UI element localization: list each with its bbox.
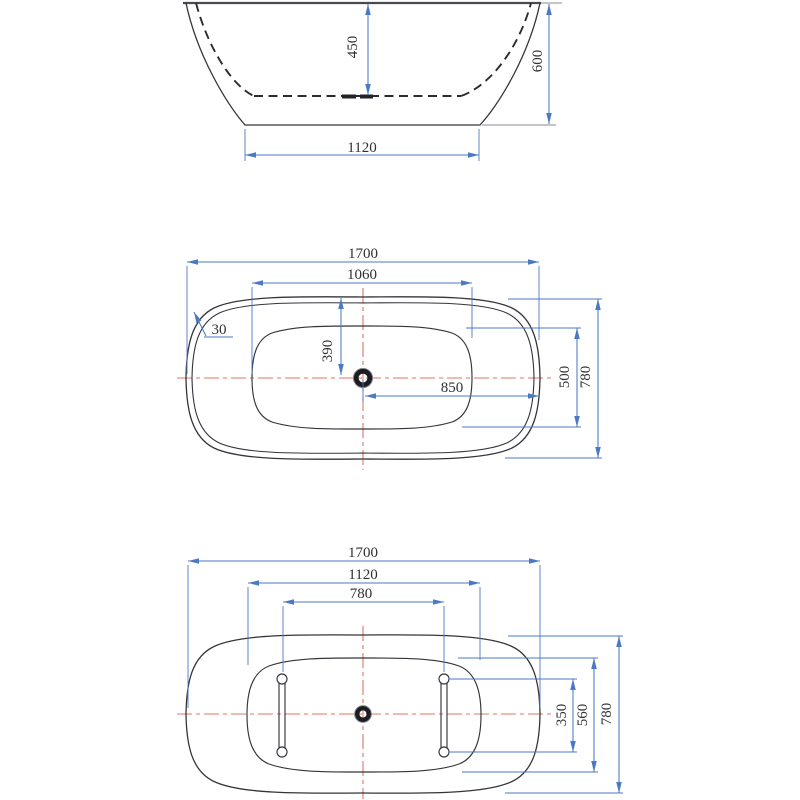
slot-hole-bottom bbox=[277, 747, 287, 757]
bottom-dim-label-1700: 1700 bbox=[348, 545, 378, 561]
front-inner-profile-left-dashed bbox=[196, 3, 254, 96]
bottom-dim-label-350: 350 bbox=[554, 704, 570, 727]
top-dim-label-30: 30 bbox=[212, 322, 227, 338]
drawing-canvas: 450 600 1120 1700 1060 30 bbox=[0, 0, 800, 800]
top-plan-view: 1700 1060 30 390 850 500 780 bbox=[177, 246, 602, 470]
top-dim-label-850: 850 bbox=[441, 380, 464, 396]
bottom-dim-label-780-slots: 780 bbox=[350, 586, 373, 602]
top-dim-label-1700: 1700 bbox=[348, 246, 378, 262]
top-dim-label-390: 390 bbox=[320, 340, 336, 363]
front-inner-profile-right-dashed bbox=[461, 3, 531, 96]
bottom-base-outline bbox=[247, 658, 481, 772]
bottom-right-mounting-slot bbox=[439, 674, 449, 757]
slot-hole-top bbox=[277, 674, 287, 684]
bottom-dim-label-1120: 1120 bbox=[348, 567, 377, 583]
top-dim-label-780: 780 bbox=[578, 366, 594, 389]
top-dim-label-1060: 1060 bbox=[347, 267, 377, 283]
front-dim-label-1120: 1120 bbox=[347, 140, 376, 156]
front-dim-label-450: 450 bbox=[345, 36, 361, 59]
bottom-dim-label-780-width: 780 bbox=[599, 703, 615, 726]
bottom-dim-label-560: 560 bbox=[575, 704, 591, 727]
bottom-plan-view: 1700 1120 780 350 560 780 bbox=[177, 545, 623, 799]
bathtub-technical-drawing: 450 600 1120 1700 1060 30 bbox=[0, 0, 800, 800]
front-outer-profile-left bbox=[186, 3, 245, 125]
slot-hole-bottom bbox=[439, 747, 449, 757]
front-elevation-view: 450 600 1120 bbox=[183, 3, 562, 161]
top-dim-label-500: 500 bbox=[557, 366, 573, 389]
bottom-left-mounting-slot bbox=[277, 674, 287, 757]
front-dim-label-600: 600 bbox=[530, 50, 546, 73]
slot-hole-top bbox=[439, 674, 449, 684]
